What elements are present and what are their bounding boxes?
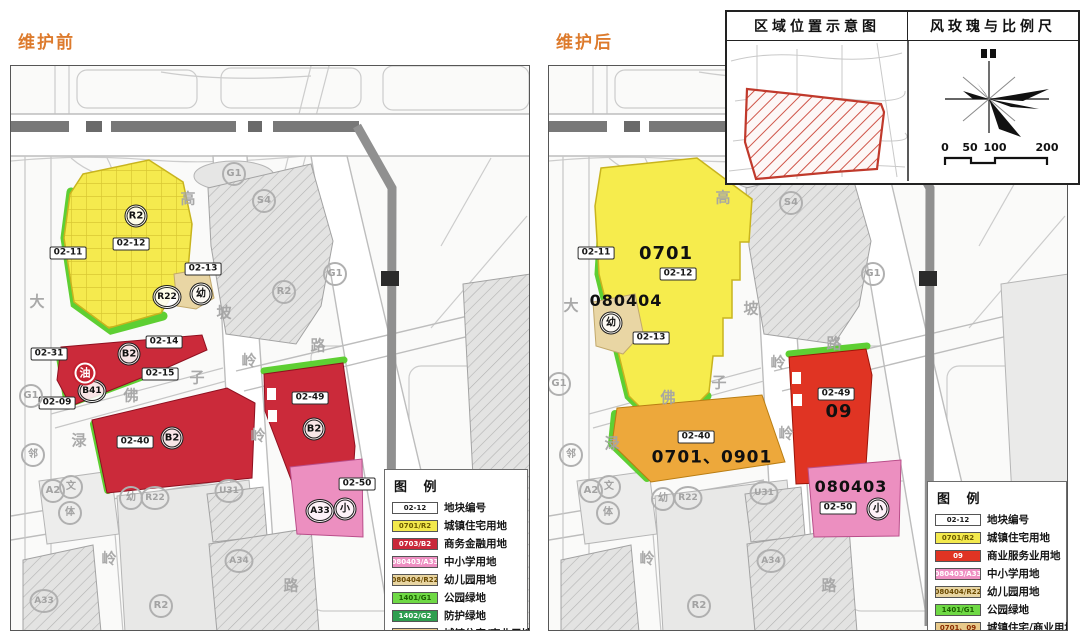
plot-code-box: 02-12 <box>660 268 697 281</box>
road-name-char: 路 <box>821 579 836 594</box>
legend-label: 公园绿地 <box>987 602 1029 617</box>
zone-code-text: 080403 <box>815 479 888 495</box>
plot-code-box: 02-50 <box>339 478 376 491</box>
legend-chip: 1401/G1 <box>935 604 981 616</box>
road-name-char: 大 <box>563 299 578 314</box>
plot-code-box: 02-11 <box>50 247 87 260</box>
bg-zone-label: R22 <box>674 486 703 510</box>
legend-chip: 080404/R22 <box>392 574 438 586</box>
road-name-char: 坡 <box>743 302 758 317</box>
legend-before: 图 例02-12地块编号0701/R2城镇住宅用地0703/B2商务金融用地08… <box>384 469 528 631</box>
bg-zone-label: G1 <box>323 262 347 286</box>
zone-circle-label: 小 <box>867 498 890 521</box>
zone-code-text: 09 <box>825 403 852 421</box>
before-title: 维护前 <box>18 28 75 53</box>
legend-label: 商务金融用地 <box>444 536 507 551</box>
legend-label: 防护绿地 <box>444 608 486 623</box>
zone-circle-label: R2 <box>125 205 148 228</box>
legend-row: 080403/A33中小学用地 <box>935 566 1059 581</box>
bg-zone-label: G1 <box>19 384 43 408</box>
road-name-char: 路 <box>826 337 841 352</box>
legend-title: 图 例 <box>394 476 520 495</box>
plot-code-box: 02-13 <box>633 332 670 345</box>
legend-title: 图 例 <box>937 488 1059 507</box>
plot-code-box: 02-50 <box>820 502 857 515</box>
legend-label: 地块编号 <box>987 512 1029 527</box>
road-name-char: 高 <box>180 192 195 207</box>
zone-circle-label: B2 <box>118 343 141 366</box>
legend-chip: 02-12 <box>935 514 981 526</box>
legend-row: 1401/G1公园绿地 <box>935 602 1059 617</box>
legend-label: 中小学用地 <box>444 554 497 569</box>
map-before: 02-1202-1102-1302-3102-1402-1502-0902-40… <box>10 65 530 631</box>
zone-circle-label: B2 <box>161 427 184 450</box>
plot-code-box: 02-11 <box>578 247 615 260</box>
bg-zone-label: U31 <box>750 481 779 505</box>
bg-zone-label: 文 <box>59 475 83 499</box>
legend-row: 1401/G1公园绿地 <box>392 590 520 605</box>
zone-code-text: 080404 <box>590 293 663 309</box>
plot-code-box: 02-12 <box>113 238 150 251</box>
plot-code-box: 02-40 <box>117 436 154 449</box>
scale-200: 200 <box>1036 141 1059 154</box>
inset-drawing <box>727 41 1078 181</box>
location-inset: 区域位置示意图 风玫瑰与比例尺 <box>725 10 1080 185</box>
legend-row: 0701、09城镇住宅/商业用地 <box>392 626 520 631</box>
bg-zone-label: U31 <box>215 479 244 503</box>
bg-zone-label: S4 <box>779 191 803 215</box>
road-name-char: 岭 <box>250 429 265 444</box>
legend-row: 02-12地块编号 <box>392 500 520 515</box>
zone-circle-label: 小 <box>334 498 357 521</box>
road-name-char: 岭 <box>241 354 256 369</box>
legend-label: 城镇住宅/商业用地 <box>444 626 530 631</box>
bg-zone-label: R2 <box>687 594 711 618</box>
plot-code-box: 02-14 <box>146 336 183 349</box>
legend-chip: 1401/G1 <box>392 592 438 604</box>
bg-zone-label: G1 <box>222 162 246 186</box>
legend-chip: 0701/R2 <box>392 520 438 532</box>
plot-code-box: 02-49 <box>818 388 855 401</box>
legend-label: 城镇住宅用地 <box>987 530 1050 545</box>
legend-chip: 1402/G2 <box>392 610 438 622</box>
legend-chip: 0701、09 <box>935 622 981 631</box>
legend-row: 0703/B2商务金融用地 <box>392 536 520 551</box>
road-name-char: 岭 <box>778 427 793 442</box>
bg-zone-label: S4 <box>252 189 276 213</box>
legend-chip: 0701、09 <box>392 628 438 631</box>
legend-label: 幼儿园用地 <box>444 572 497 587</box>
legend-label: 幼儿园用地 <box>987 584 1040 599</box>
bg-zone-label: 邻 <box>21 443 45 467</box>
scale-50: 50 <box>962 141 977 154</box>
road-name-char: 佛 <box>660 391 675 406</box>
bg-zone-label: 文 <box>597 475 621 499</box>
bg-zone-label: A33 <box>30 589 59 613</box>
legend-row: 0701/R2城镇住宅用地 <box>935 530 1059 545</box>
road-name-char: 路 <box>310 339 325 354</box>
legend-chip: 080404/R22 <box>935 586 981 598</box>
plot-code-box: 02-31 <box>31 348 68 361</box>
road-name-char: 坡 <box>216 306 231 321</box>
inset-windrose-title: 风玫瑰与比例尺 <box>908 12 1078 40</box>
bg-zone-label: R22 <box>141 486 170 510</box>
legend-chip: 080403/A33 <box>392 556 438 568</box>
planning-map-comparison: 维护前 维护后 <box>0 0 1080 631</box>
zone-code-text: 0701 <box>639 245 693 263</box>
bg-zone-label: R2 <box>149 594 173 618</box>
zone-circle-label: B2 <box>303 418 326 441</box>
legend-label: 地块编号 <box>444 500 486 515</box>
legend-row: 09商业服务业用地 <box>935 548 1059 563</box>
road-name-char: 佛 <box>123 389 138 404</box>
road-name-char: 高 <box>715 191 730 206</box>
plot-code-box: 02-49 <box>292 392 329 405</box>
legend-row: 080404/R22幼儿园用地 <box>935 584 1059 599</box>
legend-label: 商业服务业用地 <box>987 548 1061 563</box>
inset-body: 0 50 100 200 <box>727 41 1078 183</box>
road-name-char: 岭 <box>101 552 116 567</box>
legend-after: 图 例02-12地块编号0701/R2城镇住宅用地09商业服务业用地080403… <box>927 481 1067 631</box>
legend-label: 城镇住宅/商业用地 <box>987 620 1068 631</box>
scale-100: 100 <box>984 141 1007 154</box>
bg-zone-label: A34 <box>225 549 254 573</box>
legend-label: 公园绿地 <box>444 590 486 605</box>
legend-chip: 080403/A33 <box>935 568 981 580</box>
inset-header: 区域位置示意图 风玫瑰与比例尺 <box>727 12 1078 41</box>
bg-zone-label: G1 <box>548 372 571 396</box>
road-name-char: 岭 <box>770 356 785 371</box>
bg-zone-label: 体 <box>596 501 620 525</box>
road-name-char: 子 <box>189 371 204 386</box>
legend-chip: 0701/R2 <box>935 532 981 544</box>
plot-code-box: 02-09 <box>39 397 76 410</box>
legend-label: 中小学用地 <box>987 566 1040 581</box>
road-name-char: 渌 <box>604 437 619 452</box>
legend-row: 080403/A33中小学用地 <box>392 554 520 569</box>
plot-code-box: 02-40 <box>678 431 715 444</box>
zone-circle-label: 幼 <box>190 283 213 306</box>
legend-row: 02-12地块编号 <box>935 512 1059 527</box>
road-name-char: 子 <box>711 376 726 391</box>
gas-station-label: 油 <box>75 363 96 384</box>
legend-row: 0701、09城镇住宅/商业用地 <box>935 620 1059 631</box>
zone-code-text: 0701、0901 <box>652 450 773 467</box>
plot-code-box: 02-13 <box>185 263 222 276</box>
bg-zone-label: R2 <box>272 280 296 304</box>
road-name-char: 大 <box>29 295 44 310</box>
legend-chip: 02-12 <box>392 502 438 514</box>
legend-chip: 09 <box>935 550 981 562</box>
road-name-char: 渌 <box>71 434 86 449</box>
inset-location-title: 区域位置示意图 <box>727 12 908 40</box>
scale-0: 0 <box>941 141 949 154</box>
zone-circle-label: R22 <box>153 285 182 309</box>
bg-zone-label: 邻 <box>559 443 583 467</box>
after-title: 维护后 <box>556 28 613 53</box>
zone-circle-label: 幼 <box>600 312 623 335</box>
plot-code-box: 02-15 <box>142 368 179 381</box>
legend-label: 城镇住宅用地 <box>444 518 507 533</box>
legend-row: 080404/R22幼儿园用地 <box>392 572 520 587</box>
bg-zone-label: 幼 <box>651 487 675 511</box>
road-name-char: 路 <box>283 579 298 594</box>
bg-zone-label: G1 <box>861 262 885 286</box>
bg-zone-label: 体 <box>58 501 82 525</box>
bg-zone-label: 幼 <box>119 486 143 510</box>
road-name-char: 岭 <box>639 552 654 567</box>
legend-chip: 0703/B2 <box>392 538 438 550</box>
legend-row: 1402/G2防护绿地 <box>392 608 520 623</box>
legend-row: 0701/R2城镇住宅用地 <box>392 518 520 533</box>
bg-zone-label: A34 <box>757 549 786 573</box>
zone-circle-label: A33 <box>306 499 335 523</box>
